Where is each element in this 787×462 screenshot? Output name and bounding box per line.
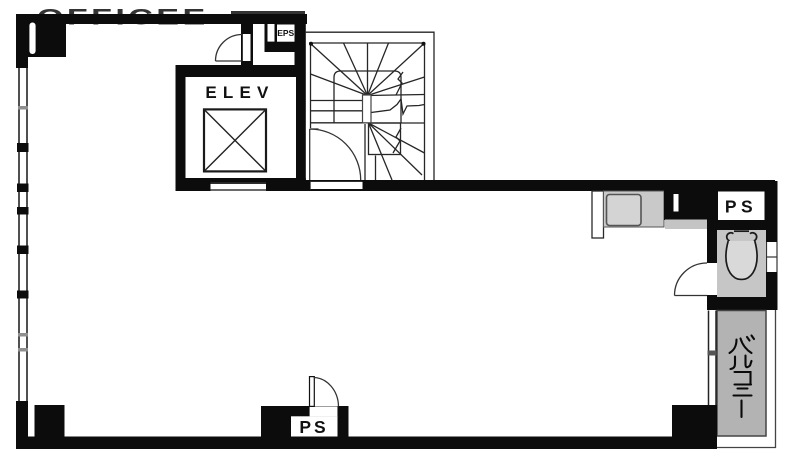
svg-text:PS: PS (299, 417, 328, 437)
svg-text:ELEV: ELEV (205, 83, 274, 102)
svg-text:EPS: EPS (277, 28, 294, 38)
svg-text:PS: PS (725, 197, 757, 217)
